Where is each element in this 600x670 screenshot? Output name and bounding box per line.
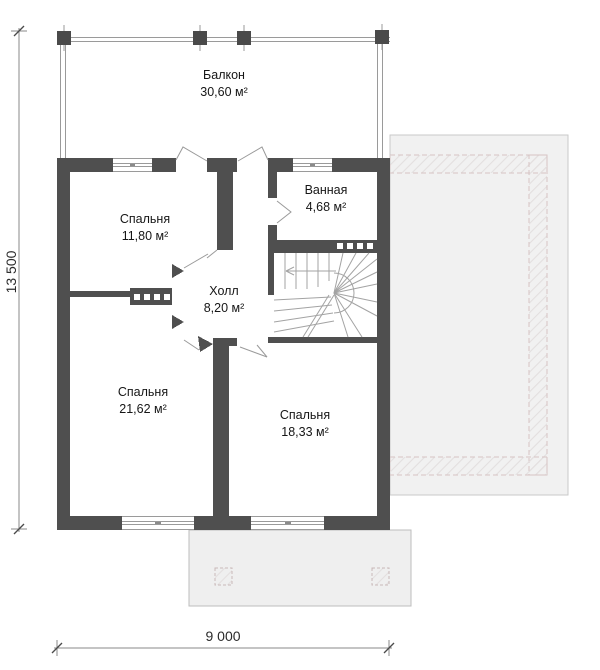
balcony-door-swing xyxy=(238,147,268,161)
roof-hatch-band-top xyxy=(390,155,547,173)
room-area: 30,60 м² xyxy=(200,84,248,101)
splayed-jamb xyxy=(172,264,184,278)
opening-line xyxy=(184,340,199,350)
dimension-label-vertical: 13 500 xyxy=(3,251,19,294)
bathroom-door-swing xyxy=(277,201,291,223)
opening-line xyxy=(207,250,217,258)
interior-walls xyxy=(70,172,377,516)
room-name: Спальня xyxy=(280,407,330,424)
room-label-bathroom: Ванная 4,68 м² xyxy=(305,182,348,216)
room-label-bedroom1: Спальня 11,80 м² xyxy=(120,211,170,245)
window xyxy=(122,516,194,530)
roof-hatch-band-right xyxy=(529,155,547,475)
room-name: Спальня xyxy=(120,211,170,228)
staircase xyxy=(274,253,377,337)
room-name: Балкон xyxy=(200,67,248,84)
roof-hatch-band-bottom xyxy=(390,457,547,475)
room-area: 21,62 м² xyxy=(118,401,168,418)
window xyxy=(251,516,324,530)
porch-column-footing xyxy=(215,568,232,585)
room-label-hall: Холл 8,20 м² xyxy=(204,283,245,317)
floor-plan-drawing xyxy=(0,0,600,670)
floor-plan: Балкон 30,60 м² Спальня 11,80 м² Ванная … xyxy=(0,0,600,670)
room-name: Спальня xyxy=(118,384,168,401)
splayed-jamb xyxy=(198,336,213,352)
room-label-bedroom2: Спальня 21,62 м² xyxy=(118,384,168,418)
window xyxy=(113,158,152,172)
porch-column-footing xyxy=(372,568,389,585)
room-area: 18,33 м² xyxy=(280,424,330,441)
room-name: Ванная xyxy=(305,182,348,199)
room-area: 8,20 м² xyxy=(204,300,245,317)
room-area: 4,68 м² xyxy=(305,199,348,216)
room-name: Холл xyxy=(204,283,245,300)
splayed-jamb xyxy=(172,315,184,329)
dimension-label-horizontal: 9 000 xyxy=(205,628,240,644)
window xyxy=(293,158,332,172)
opening-line xyxy=(184,254,208,268)
room-area: 11,80 м² xyxy=(120,228,170,245)
stair-break-line xyxy=(303,295,334,337)
balcony-door-swing xyxy=(176,147,207,161)
porch xyxy=(189,530,411,606)
room-label-bedroom3: Спальня 18,33 м² xyxy=(280,407,330,441)
roof-terrace xyxy=(390,135,568,495)
room-label-balcony: Балкон 30,60 м² xyxy=(200,67,248,101)
